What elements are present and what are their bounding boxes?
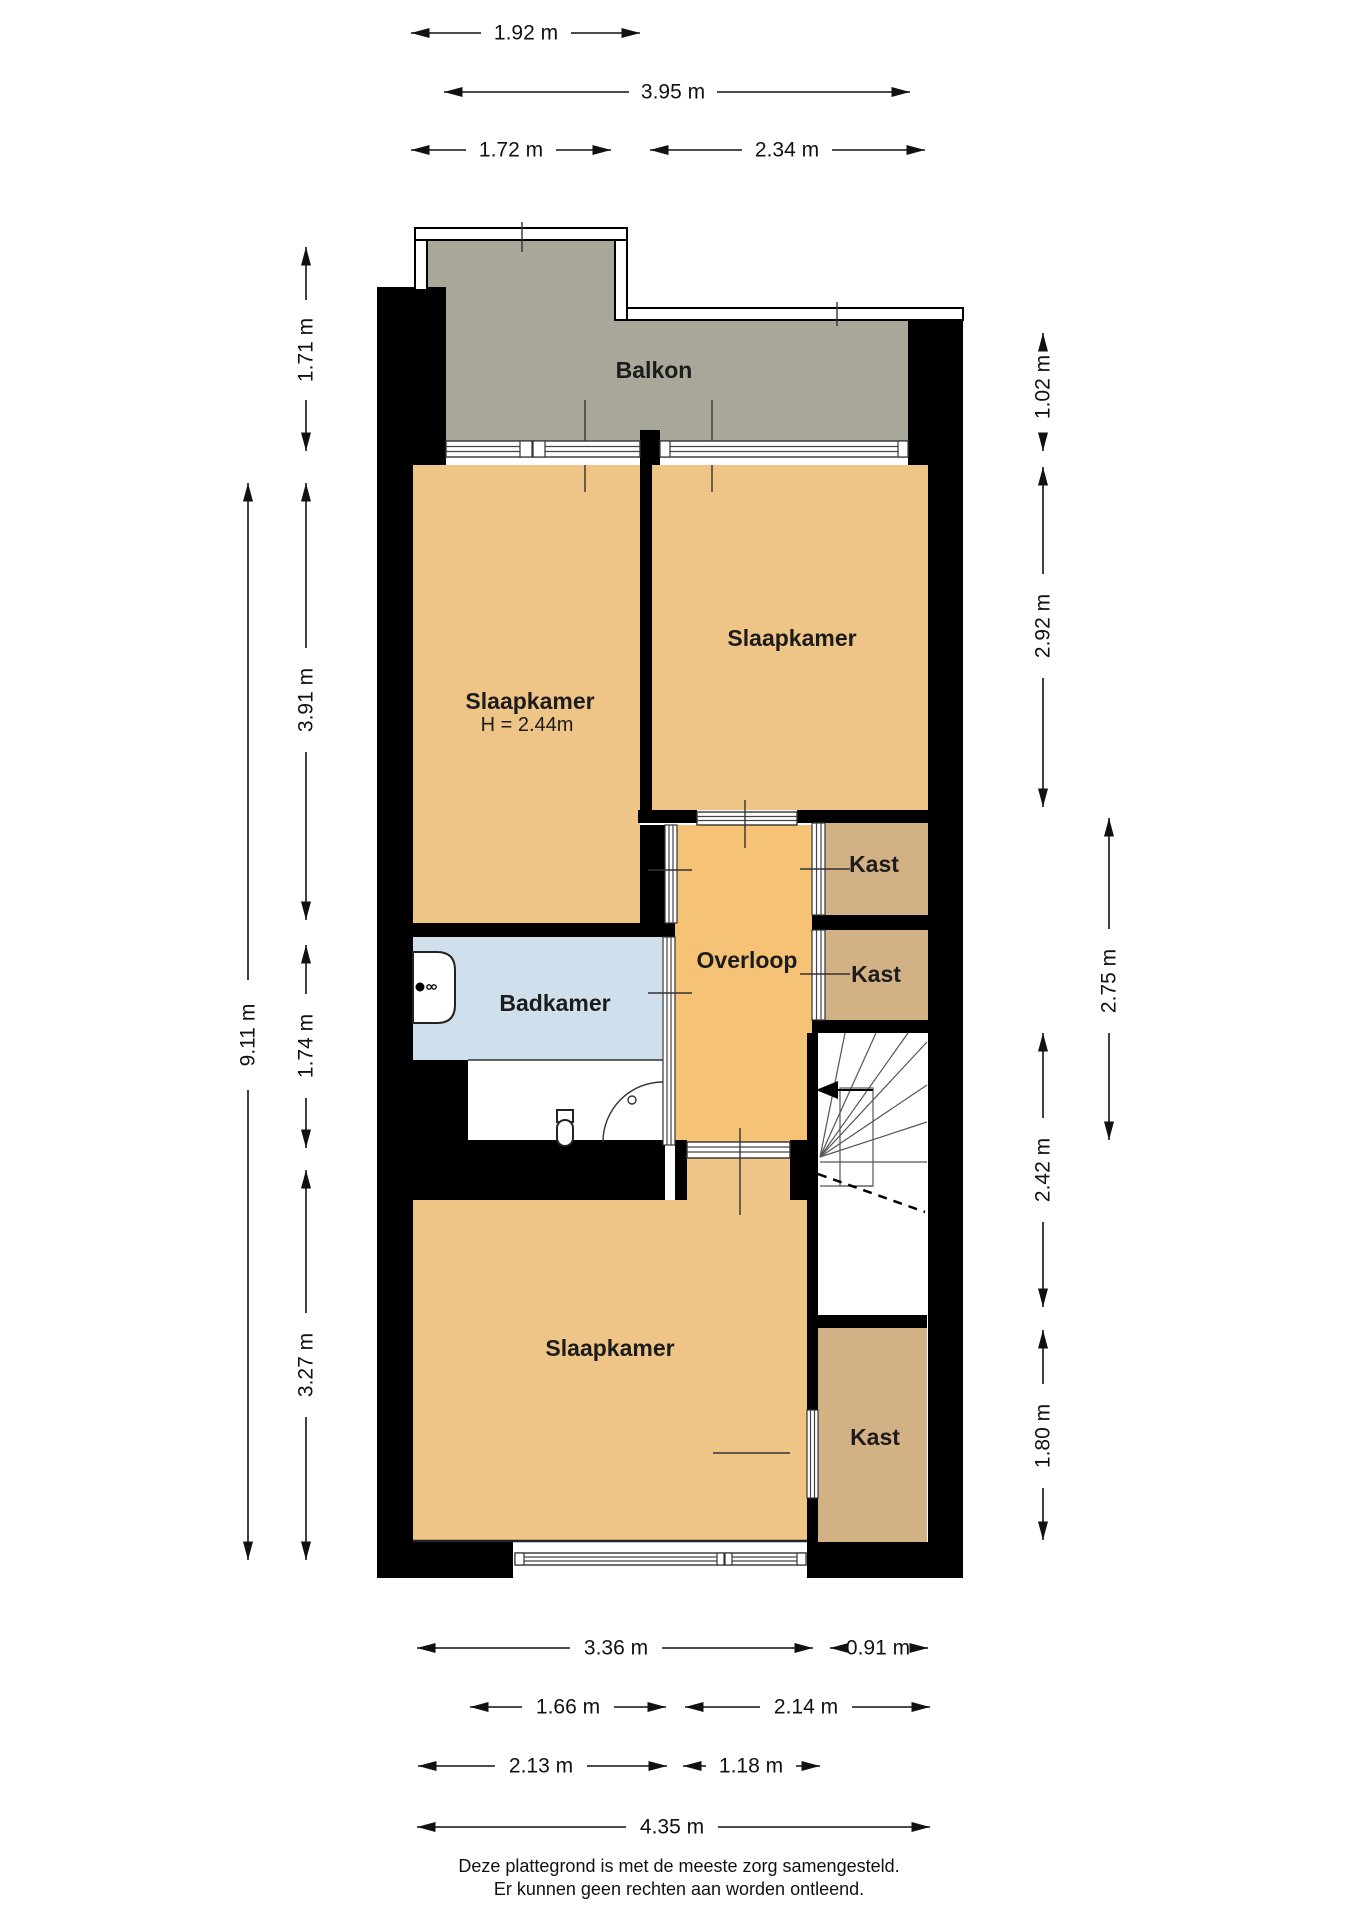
- kast3-top-wall: [818, 1315, 927, 1328]
- dim-balcony-total-width: 3.95 m: [444, 81, 910, 104]
- dim-closet-width: 0.91 m: [830, 1637, 928, 1660]
- balcony-floor-upper: [427, 238, 627, 441]
- svg-text:1.74 m: 1.74 m: [295, 1014, 318, 1078]
- east-wall-balcony: [908, 310, 963, 465]
- svg-text:0.91 m: 0.91 m: [846, 1637, 910, 1660]
- kast2-bottom-wall: [812, 1020, 928, 1033]
- svg-text:1.80 m: 1.80 m: [1032, 1404, 1055, 1468]
- west-wall: [377, 287, 413, 1578]
- bedroom1-bottom-wall: [413, 923, 675, 937]
- railing-joint-band: [615, 240, 627, 320]
- bedroom2-window: [660, 441, 908, 457]
- svg-text:2.75 m: 2.75 m: [1098, 949, 1121, 1013]
- south-wall-left: [377, 1542, 513, 1578]
- dim-balcony-side-depth: 1.02 m: [1032, 333, 1055, 451]
- dim-stairs-depth: 2.42 m: [1032, 1033, 1055, 1307]
- window-pillar: [640, 430, 660, 465]
- footer-disclaimer-line2: Er kunnen geen rechten aan worden ontlee…: [494, 1879, 864, 1899]
- svg-text:1.66 m: 1.66 m: [536, 1696, 600, 1719]
- room-label-bedroom2: Slaapkamer: [727, 625, 856, 651]
- svg-text:2.42 m: 2.42 m: [1032, 1138, 1055, 1202]
- bedroom3-floor-door-notch: [687, 1158, 790, 1203]
- footer-disclaimer-line1: Deze plattegrond is met de meeste zorg s…: [458, 1856, 899, 1876]
- room-label-bedroom3: Slaapkamer: [545, 1335, 674, 1361]
- bathtub-tap: [416, 983, 425, 992]
- toilet-bowl: [557, 1120, 573, 1146]
- railing-lower-band: [627, 308, 963, 320]
- dim-width-213: 2.13 m: [418, 1755, 667, 1778]
- svg-text:4.35 m: 4.35 m: [640, 1816, 704, 1839]
- svg-text:2.92 m: 2.92 m: [1032, 594, 1055, 658]
- bedroom2-bottom-wall-right: [797, 810, 928, 823]
- east-wall-main: [928, 465, 963, 1578]
- overloop-floor: [675, 825, 812, 1145]
- dimensions-left: 1.71 m 9.11 m 3.91 m 1.74 m 3.27 m: [237, 247, 318, 1560]
- badkamer-bedroom3-wall: [377, 1140, 665, 1200]
- dim-hall-depth: 2.75 m: [1098, 818, 1121, 1140]
- dim-bathroom-depth: 1.74 m: [295, 945, 318, 1148]
- dim-width-214: 2.14 m: [685, 1696, 930, 1719]
- svg-text:3.27 m: 3.27 m: [295, 1333, 318, 1397]
- room-label-kast2: Kast: [851, 961, 901, 987]
- svg-text:2.13 m: 2.13 m: [509, 1755, 573, 1778]
- dim-total-depth: 9.11 m: [237, 483, 260, 1560]
- svg-text:2.14 m: 2.14 m: [774, 1696, 838, 1719]
- footer: Deze plattegrond is met de meeste zorg s…: [458, 1856, 899, 1899]
- dim-bedroom1-width: 1.72 m: [411, 139, 611, 162]
- svg-text:3.36 m: 3.36 m: [584, 1637, 648, 1660]
- railing-left-band: [415, 240, 427, 290]
- bedroom-divider-wall: [640, 465, 652, 812]
- svg-text:2.34 m: 2.34 m: [755, 139, 819, 162]
- dim-bedroom2-width: 2.34 m: [650, 139, 925, 162]
- dimensions-right: 1.02 m 2.92 m 2.75 m 2.42 m 1.80 m: [1032, 333, 1121, 1540]
- dim-bedroom2-depth: 2.92 m: [1032, 467, 1055, 807]
- dimensions-bottom: 3.36 m 0.91 m 1.66 m 2.14 m 2.13 m 1.18 …: [417, 1637, 930, 1839]
- room-label-kast1: Kast: [849, 851, 899, 877]
- dimensions-top: 1.92 m 3.95 m 1.72 m 2.34 m: [411, 22, 925, 162]
- dim-closet-depth: 1.80 m: [1032, 1330, 1055, 1540]
- room-label-bedroom1: Slaapkamer: [465, 688, 594, 714]
- kast-divider-wall: [812, 915, 928, 930]
- room-label-balkon: Balkon: [616, 357, 693, 383]
- dim-bedroom1-depth: 3.91 m: [295, 483, 318, 920]
- dim-width-166: 1.66 m: [470, 1696, 666, 1719]
- svg-text:1.72 m: 1.72 m: [479, 139, 543, 162]
- svg-text:3.95 m: 3.95 m: [641, 81, 705, 104]
- room-label-overloop: Overloop: [697, 947, 798, 973]
- dim-width-118: 1.18 m: [683, 1755, 820, 1778]
- toilet-left-wall-chunk: [413, 1060, 468, 1145]
- svg-text:1.92 m: 1.92 m: [494, 22, 558, 45]
- svg-text:1.18 m: 1.18 m: [719, 1755, 783, 1778]
- bedroom2-bottom-wall-left: [638, 810, 697, 823]
- svg-text:9.11 m: 9.11 m: [237, 1004, 260, 1067]
- dim-balcony-upper-width: 1.92 m: [411, 22, 640, 45]
- svg-text:1.02 m: 1.02 m: [1032, 355, 1055, 419]
- west-wall-top-chunk: [413, 287, 446, 465]
- overloop-bottom-wall-left: [675, 1140, 687, 1200]
- bedroom1-window: [446, 441, 640, 457]
- room-label-bedroom1-height: H = 2.44m: [481, 714, 574, 736]
- railing-top-band: [415, 228, 627, 240]
- bedroom3-floor: [413, 1200, 807, 1542]
- floor-plan-svg: Balkon Slaapkamer H = 2.44m Slaapkamer O…: [0, 0, 1358, 1920]
- dim-balcony-depth: 1.71 m: [295, 247, 318, 451]
- svg-text:3.91 m: 3.91 m: [295, 668, 318, 732]
- dim-total-width: 4.35 m: [417, 1816, 930, 1839]
- room-label-kast3: Kast: [850, 1424, 900, 1450]
- south-wall-right: [807, 1542, 963, 1578]
- dim-bedroom3-width: 3.36 m: [417, 1637, 813, 1660]
- floor-plan-page: Balkon Slaapkamer H = 2.44m Slaapkamer O…: [0, 0, 1358, 1920]
- dim-bedroom3-depth: 3.27 m: [295, 1170, 318, 1560]
- room-label-badkamer: Badkamer: [499, 990, 610, 1016]
- svg-text:1.71 m: 1.71 m: [295, 318, 318, 382]
